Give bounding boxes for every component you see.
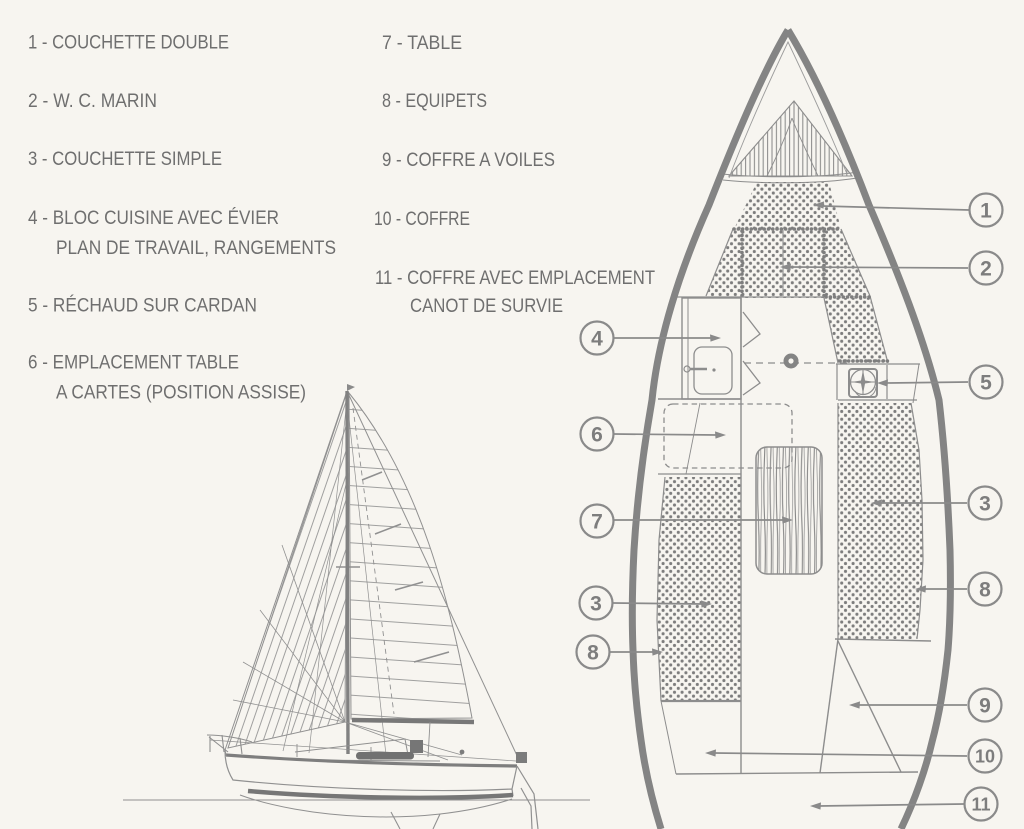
svg-text:2 - W. C. MARIN: 2 - W. C. MARIN bbox=[28, 91, 157, 112]
svg-text:CANOT DE SURVIE: CANOT DE SURVIE bbox=[410, 296, 563, 317]
svg-text:6 - EMPLACEMENT TABLE: 6 - EMPLACEMENT TABLE bbox=[28, 353, 239, 374]
svg-text:3 - COUCHETTE SIMPLE: 3 - COUCHETTE SIMPLE bbox=[28, 149, 222, 170]
svg-text:7: 7 bbox=[591, 511, 603, 534]
svg-text:7 - TABLE: 7 - TABLE bbox=[382, 33, 462, 54]
svg-text:1: 1 bbox=[980, 200, 992, 223]
svg-text:2: 2 bbox=[980, 258, 992, 281]
svg-text:8 - EQUIPETS: 8 - EQUIPETS bbox=[382, 91, 487, 112]
svg-text:5: 5 bbox=[980, 372, 992, 395]
svg-text:6: 6 bbox=[591, 424, 603, 447]
svg-text:8: 8 bbox=[979, 579, 991, 602]
svg-text:PLAN DE TRAVAIL, RANGEMENTS: PLAN DE TRAVAIL, RANGEMENTS bbox=[56, 238, 336, 259]
svg-text:3: 3 bbox=[979, 493, 991, 516]
svg-text:1 - COUCHETTE DOUBLE: 1 - COUCHETTE DOUBLE bbox=[28, 33, 229, 54]
svg-text:10: 10 bbox=[975, 747, 995, 767]
svg-text:3: 3 bbox=[590, 593, 602, 616]
svg-text:11 - COFFRE AVEC EMPLACEMENT: 11 - COFFRE AVEC EMPLACEMENT bbox=[375, 268, 655, 289]
svg-text:4 - BLOC CUISINE AVEC ÉVIER: 4 - BLOC CUISINE AVEC ÉVIER bbox=[28, 208, 279, 229]
svg-text:9 - COFFRE A VOILES: 9 - COFFRE A VOILES bbox=[382, 150, 555, 171]
svg-text:9: 9 bbox=[979, 695, 991, 718]
svg-text:5 - RÉCHAUD SUR CARDAN: 5 - RÉCHAUD SUR CARDAN bbox=[28, 296, 257, 317]
svg-text:4: 4 bbox=[591, 328, 603, 351]
svg-text:11: 11 bbox=[971, 795, 990, 815]
svg-text:10 - COFFRE: 10 - COFFRE bbox=[374, 209, 470, 230]
svg-text:8: 8 bbox=[587, 642, 599, 665]
svg-text:A CARTES (POSITION ASSISE): A CARTES (POSITION ASSISE) bbox=[56, 383, 306, 404]
